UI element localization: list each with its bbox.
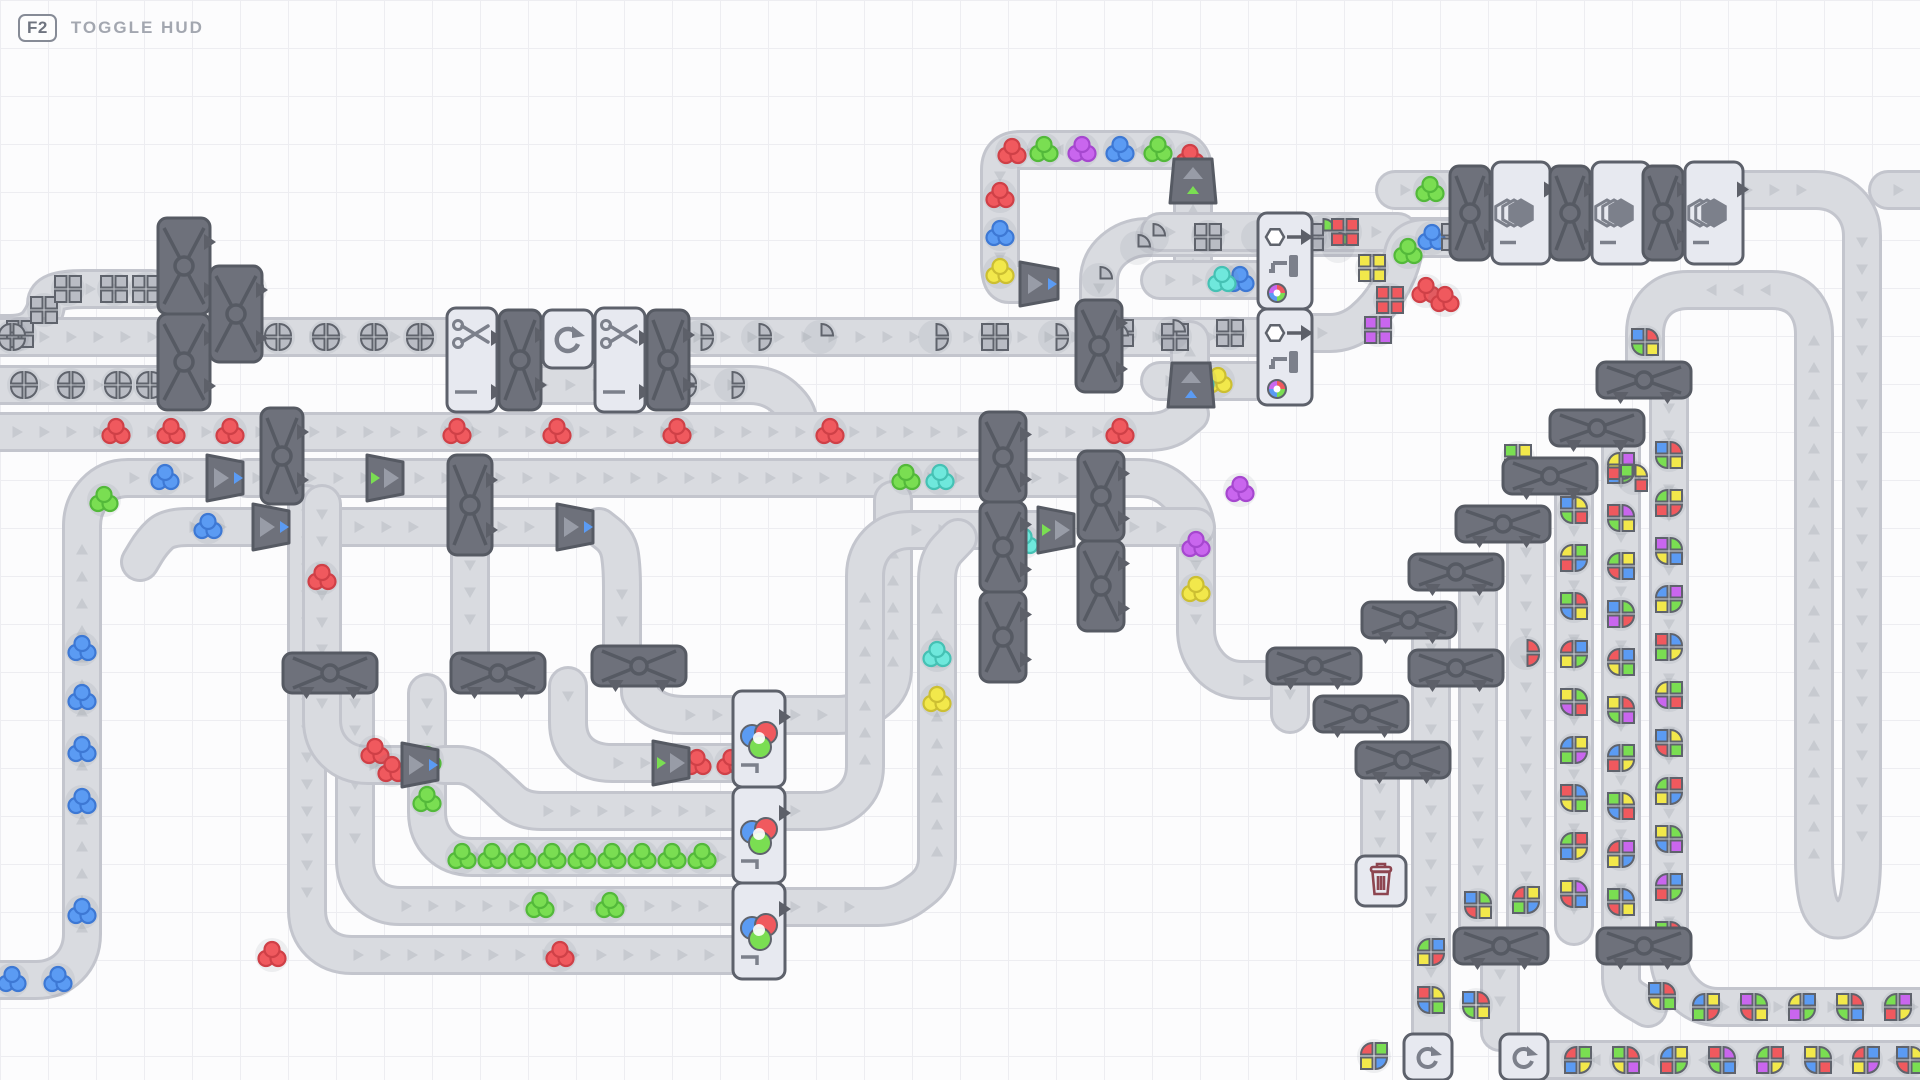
item-shape [1604, 885, 1638, 919]
machine-vbal[interactable] [261, 408, 309, 504]
machine-filter[interactable] [653, 741, 689, 785]
item-shape [1604, 645, 1638, 679]
machine-vbal[interactable] [1078, 451, 1130, 541]
item-shape [1357, 1039, 1391, 1073]
machine-vbal[interactable] [980, 412, 1032, 502]
conveyor-belt[interactable] [1374, 778, 1386, 854]
item-color [154, 415, 188, 449]
item-color [410, 783, 444, 817]
item-shape [1645, 979, 1679, 1013]
item-color [65, 895, 99, 929]
machine-hbal[interactable] [451, 653, 545, 699]
conveyor-belt[interactable] [0, 472, 207, 986]
conveyor-belt[interactable] [1124, 521, 1196, 533]
item-color [213, 415, 247, 449]
item-shape [101, 368, 135, 402]
item-shape [1604, 693, 1638, 727]
item-shape [1689, 990, 1723, 1024]
machine-cutter[interactable] [447, 308, 503, 412]
toggle-hud-label: TOGGLE HUD [71, 18, 204, 38]
item-shape [1652, 534, 1686, 568]
machine-hbal[interactable] [1409, 650, 1503, 692]
item-color [523, 889, 557, 923]
item-shape [1652, 822, 1686, 856]
item-shape [1557, 589, 1591, 623]
item-shape [97, 272, 131, 306]
item-shape [1652, 438, 1686, 472]
item-color [1027, 133, 1061, 167]
machine-filter[interactable] [207, 455, 243, 501]
item-color [475, 840, 509, 874]
item-shape [1604, 597, 1638, 631]
item-color [65, 733, 99, 767]
item-color [41, 963, 75, 997]
machine-filterup[interactable] [1170, 159, 1216, 203]
item-shape [1628, 325, 1662, 359]
conveyor-belt[interactable] [464, 555, 476, 653]
machine-vbal[interactable] [1550, 166, 1596, 260]
item-shape [1557, 685, 1591, 719]
conveyor-belt[interactable] [1494, 964, 1506, 1032]
machine-hbal[interactable] [1409, 554, 1503, 596]
item-shape [1355, 251, 1389, 285]
machine-filter[interactable] [1020, 262, 1058, 306]
item-shape [1459, 988, 1493, 1022]
item-color [889, 461, 923, 495]
machine-painter[interactable] [1258, 309, 1313, 405]
item-shape [1561, 1043, 1595, 1077]
item-shape [1414, 983, 1448, 1017]
machine-vbal[interactable] [210, 266, 268, 362]
item-shape [1881, 990, 1915, 1024]
machine-filter[interactable] [367, 455, 403, 501]
item-shape [1082, 263, 1116, 297]
item-shape [1604, 741, 1638, 775]
machine-mixer[interactable] [733, 883, 791, 979]
item-color [543, 938, 577, 972]
machine-vbal[interactable] [1078, 541, 1130, 631]
item-shape [1604, 837, 1638, 871]
item-shape [1617, 461, 1651, 495]
item-shape [1557, 877, 1591, 911]
item-color [535, 840, 569, 874]
machine-rot[interactable] [543, 310, 593, 368]
machine-filter[interactable] [557, 504, 593, 550]
item-shape [1414, 935, 1448, 969]
item-color [1223, 473, 1257, 507]
item-shape [54, 368, 88, 402]
machine-trash[interactable] [1356, 856, 1406, 906]
conveyor-belt[interactable] [640, 686, 733, 721]
machine-mixer[interactable] [733, 691, 791, 787]
item-shape [1604, 549, 1638, 583]
machine-hbal[interactable] [283, 653, 377, 699]
item-color [983, 255, 1017, 289]
hud-hint: F2 TOGGLE HUD [18, 14, 204, 42]
item-shape [1373, 283, 1407, 317]
item-shape [1652, 678, 1686, 712]
item-color [685, 840, 719, 874]
conveyor-belt[interactable] [1472, 590, 1484, 926]
machine-hbal[interactable] [592, 646, 686, 692]
item-color [1103, 133, 1137, 167]
item-color [305, 561, 339, 595]
item-shape [1120, 231, 1154, 265]
machine-hbal[interactable] [1597, 928, 1691, 970]
item-color [920, 683, 954, 717]
item-shape [1557, 733, 1591, 767]
machine-rotsmall[interactable] [1404, 1034, 1452, 1080]
item-shape [1557, 829, 1591, 863]
item-shape [1557, 541, 1591, 575]
item-shape [1191, 220, 1225, 254]
machine-stacker[interactable] [1685, 162, 1749, 264]
game-viewport[interactable]: F2 TOGGLE HUD [0, 0, 1920, 1080]
item-color [593, 889, 627, 923]
item-color [1179, 573, 1213, 607]
item-color [445, 840, 479, 874]
item-color [595, 840, 629, 874]
item-color [1413, 173, 1447, 207]
item-shape [1213, 316, 1247, 350]
item-color [1205, 263, 1239, 297]
item-shape [309, 320, 343, 354]
item-shape [1038, 320, 1072, 354]
conveyor-belt[interactable] [1425, 638, 1437, 1032]
item-shape [1652, 582, 1686, 616]
machine-vbal[interactable] [158, 314, 216, 410]
item-color [148, 461, 182, 495]
item-shape [1737, 990, 1771, 1024]
machine-vbal[interactable] [1076, 300, 1128, 392]
conveyor-belt[interactable] [492, 521, 557, 533]
machine-cutter[interactable] [595, 308, 651, 412]
conveyor-belt[interactable] [599, 527, 628, 646]
item-color [920, 638, 954, 672]
conveyor-belt[interactable] [247, 472, 980, 484]
machine-painter[interactable] [1258, 213, 1313, 309]
item-shape [1652, 630, 1686, 664]
item-color [983, 179, 1017, 213]
machine-hbal[interactable] [1362, 602, 1456, 644]
item-shape [1609, 1043, 1643, 1077]
item-color [1103, 415, 1137, 449]
machine-vbal[interactable] [980, 592, 1032, 682]
item-shape [1652, 486, 1686, 520]
machine-hbal[interactable] [1550, 410, 1644, 452]
item-color [660, 415, 694, 449]
item-shape [918, 320, 952, 354]
item-color [255, 938, 289, 972]
machine-mixer[interactable] [733, 787, 791, 883]
item-shape [1604, 789, 1638, 823]
item-color [540, 415, 574, 449]
item-shape [1361, 313, 1395, 347]
conveyor-belt[interactable] [1888, 184, 1920, 196]
item-shape [714, 368, 748, 402]
item-color [923, 461, 957, 495]
item-color [565, 840, 599, 874]
item-shape [1849, 1043, 1883, 1077]
machine-stacker[interactable] [1492, 162, 1556, 264]
item-color [995, 135, 1029, 169]
machine-vbal[interactable] [1450, 166, 1496, 260]
item-shape [1509, 636, 1543, 670]
item-color [1428, 283, 1462, 317]
item-shape [1833, 990, 1867, 1024]
factory-scene[interactable] [0, 0, 1920, 1080]
item-shape [1652, 726, 1686, 760]
item-shape [1604, 501, 1638, 535]
f2-key-badge: F2 [18, 14, 57, 42]
machine-hbal[interactable] [1503, 458, 1597, 500]
item-shape [1801, 1043, 1835, 1077]
machine-hbal[interactable] [1597, 362, 1691, 404]
item-shape [1461, 888, 1495, 922]
item-color [1065, 133, 1099, 167]
item-color [813, 415, 847, 449]
item-shape [1509, 883, 1543, 917]
machine-hbal[interactable] [1456, 506, 1550, 548]
item-shape [403, 320, 437, 354]
machine-vbal[interactable] [647, 310, 695, 410]
machine-rotsmall[interactable] [1500, 1034, 1548, 1080]
item-color [655, 840, 689, 874]
item-color [65, 681, 99, 715]
item-shape [1652, 870, 1686, 904]
item-shape [1557, 637, 1591, 671]
item-color [65, 785, 99, 819]
machine-filter[interactable] [1038, 507, 1074, 553]
machine-filter[interactable] [402, 743, 438, 787]
item-shape [7, 368, 41, 402]
machine-hbal[interactable] [1454, 928, 1548, 970]
machine-hbal[interactable] [1314, 696, 1408, 738]
conveyor-belt[interactable] [1520, 542, 1532, 926]
machine-vbal[interactable] [499, 310, 547, 410]
item-color [625, 840, 659, 874]
item-shape [1753, 1043, 1787, 1077]
item-shape [1652, 774, 1686, 808]
conveyor-belt[interactable] [1621, 964, 1648, 1008]
machine-filterup[interactable] [1168, 363, 1214, 407]
item-shape [1155, 316, 1189, 350]
item-shape [803, 320, 837, 354]
item-shape [1557, 781, 1591, 815]
item-color [99, 415, 133, 449]
item-color [440, 415, 474, 449]
item-shape [1657, 1043, 1691, 1077]
item-color [1141, 133, 1175, 167]
item-shape [51, 272, 85, 306]
item-shape [1328, 215, 1362, 249]
item-color [65, 632, 99, 666]
item-shape [1785, 990, 1819, 1024]
item-shape [357, 320, 391, 354]
machine-vbal[interactable] [158, 218, 216, 314]
item-shape [741, 320, 775, 354]
machine-hbal[interactable] [1356, 742, 1450, 784]
machine-hbal[interactable] [1267, 648, 1361, 690]
item-color [87, 483, 121, 517]
item-color [191, 510, 225, 544]
machine-vbal[interactable] [1643, 166, 1689, 260]
machine-filter[interactable] [253, 504, 289, 550]
machine-vbal[interactable] [980, 502, 1032, 592]
item-shape [1705, 1043, 1739, 1077]
item-color [983, 217, 1017, 251]
item-color [505, 840, 539, 874]
item-shape [978, 320, 1012, 354]
machine-vbal[interactable] [448, 455, 498, 555]
item-color [1179, 528, 1213, 562]
